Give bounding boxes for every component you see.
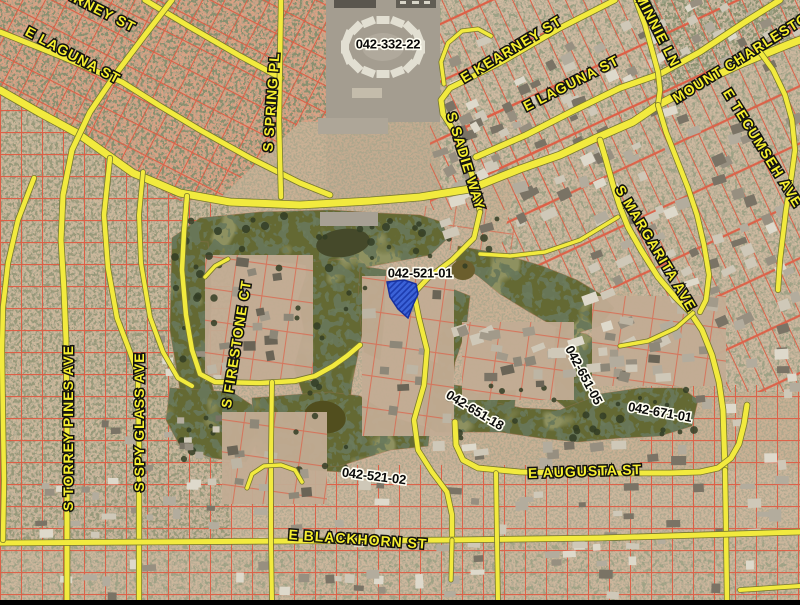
svg-text:042-332-22: 042-332-22 [356, 37, 421, 52]
svg-text:S TORREY PINES AVE: S TORREY PINES AVE [60, 345, 76, 511]
svg-text:S SPY GLASS AVE: S SPY GLASS AVE [131, 352, 147, 491]
svg-text:042-521-01: 042-521-01 [388, 266, 453, 281]
